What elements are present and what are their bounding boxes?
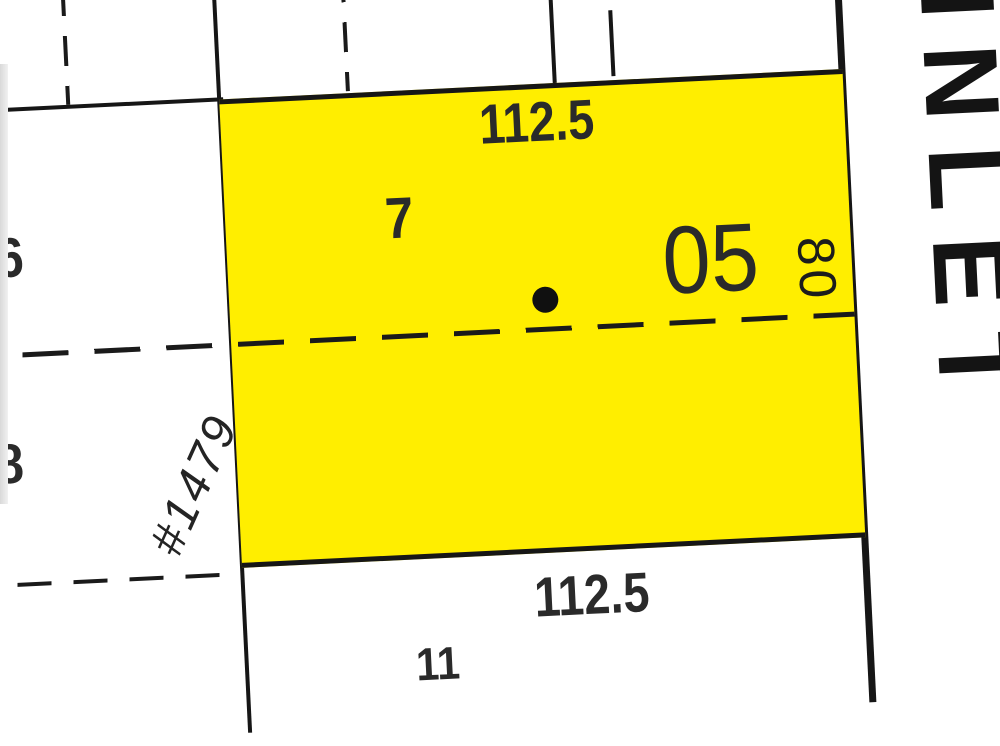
lot-line-north-vertical bbox=[546, 0, 557, 83]
lot-line-north-west bbox=[0, 97, 223, 115]
lot-split-dashed-line-upper-mid bbox=[340, 0, 350, 91]
parcel-frontage-top-label: 112.5 bbox=[478, 91, 596, 153]
scan-edge-artifact bbox=[0, 64, 8, 504]
street-name-label: INLET bbox=[894, 0, 1000, 512]
neighbor-lot-label-south: 11 bbox=[415, 639, 461, 687]
lot-split-dashed-line-southwest bbox=[0, 572, 242, 590]
parcel-frontage-bottom-label: 112.5 bbox=[533, 564, 651, 626]
address-label: #1479 bbox=[143, 408, 248, 563]
lot-split-dashed-line-upper-left bbox=[60, 0, 70, 105]
plat-map-canvas: 112.5 112.5 7 05 80 #1479 INLET 6 8 11 bbox=[0, 0, 1000, 746]
lot-number-label: 7 bbox=[384, 189, 415, 248]
parcel-depth-label: 80 bbox=[789, 235, 844, 303]
lot-line-north-stub bbox=[608, 10, 615, 76]
parcel-id-label: 05 bbox=[660, 209, 761, 310]
